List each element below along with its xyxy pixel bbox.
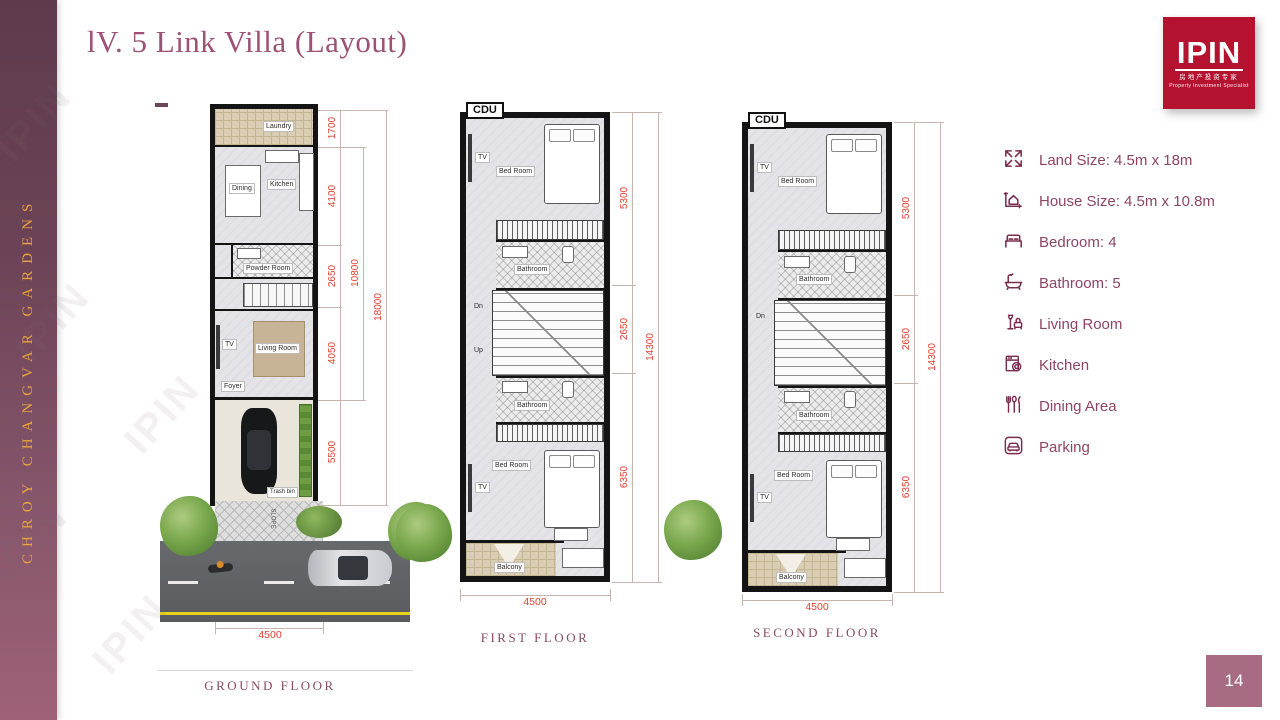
spec-item-living-room: Living Room — [1002, 304, 1232, 345]
ground-building-outline: Laundry Dining Kitchen Powder Room TV Li… — [210, 104, 318, 506]
room-label-up: Up — [474, 346, 483, 355]
room-label-trash-bin: Trash bin — [267, 487, 298, 498]
wardrobe-graphic — [778, 434, 886, 452]
room-label-balcony: Balcony — [776, 572, 807, 583]
second-floor-plan: CDU TV Bed Room Bathroom Dn Bathroom — [712, 110, 972, 655]
room-label-bedroom: Bed Room — [496, 166, 535, 177]
dim-width-4500: 4500 — [523, 597, 546, 608]
dining-icon — [1002, 393, 1025, 421]
dim-width-4500: 4500 — [805, 602, 828, 613]
room-label-foyer: Foyer — [221, 381, 245, 392]
tv-unit-graphic — [468, 464, 472, 512]
dim-4050: 4050 — [328, 342, 338, 364]
tree-graphic — [160, 496, 218, 556]
dim-4100: 4100 — [328, 185, 338, 207]
bed-graphic — [826, 460, 882, 538]
room-label-balcony: Balcony — [494, 562, 525, 573]
spec-item-kitchen: Kitchen — [1002, 345, 1232, 386]
room-label-tv: TV — [757, 492, 772, 503]
spec-item-land-size: Land Size: 4.5m x 18m — [1002, 140, 1232, 181]
floor-caption-ground: GROUND FLOOR — [180, 678, 360, 694]
first-floor-plan: CDU TV Bed Room Bathroom Dn Up Bathroom — [430, 100, 690, 660]
dim-2650: 2650 — [902, 328, 912, 350]
spec-item-label: Parking — [1039, 439, 1090, 456]
house-icon — [1002, 188, 1025, 216]
spec-item-bathroom: Bathroom: 5 — [1002, 263, 1232, 304]
sidebar: CHROY CHANGVAR GARDENS — [0, 0, 57, 720]
spec-item-dining: Dining Area — [1002, 386, 1232, 427]
room-label-powder-room: Powder Room — [243, 263, 293, 274]
room-label-slope: SLOPE — [268, 508, 277, 528]
dim-18000: 18000 — [374, 293, 384, 321]
room-label-tv: TV — [222, 339, 237, 350]
kitchen-counter-graphic — [299, 153, 314, 211]
page-title: lV. 5 Link Villa (Layout) — [87, 24, 407, 60]
spec-item-parking: Parking — [1002, 427, 1232, 468]
sidebar-vertical-text: CHROY CHANGVAR GARDENS — [0, 110, 57, 650]
spec-item-label: House Size: 4.5m x 10.8m — [1039, 193, 1215, 210]
room-label-dn: Dn — [756, 312, 765, 321]
wardrobe-graphic — [496, 220, 604, 240]
room-label-tv: TV — [757, 162, 772, 173]
spec-item-house-size: House Size: 4.5m x 10.8m — [1002, 181, 1232, 222]
logo-wordmark: IPIN — [1175, 38, 1243, 71]
expand-icon — [1002, 147, 1025, 175]
kitchen-icon — [1002, 352, 1025, 380]
dim-14300: 14300 — [646, 333, 656, 361]
spec-item-bedroom: Bedroom: 4 — [1002, 222, 1232, 263]
dim-10800: 10800 — [351, 259, 361, 287]
spec-item-label: Land Size: 4.5m x 18m — [1039, 152, 1192, 169]
cdu-label: CDU — [748, 112, 786, 129]
room-label-laundry: Laundry — [263, 121, 294, 132]
logo-tagline: Property Investment Specialist — [1169, 83, 1249, 89]
page-number-badge: 14 — [1206, 655, 1262, 707]
floor-caption-first: FIRST FLOOR — [455, 630, 615, 646]
bed-graphic — [544, 124, 600, 204]
dim-2650: 2650 — [328, 265, 338, 287]
ground-floor-plan: Laundry Dining Kitchen Powder Room TV Li… — [160, 100, 410, 712]
room-label-bedroom: Bed Room — [778, 176, 817, 187]
room-label-bathroom: Bathroom — [796, 274, 832, 285]
second-building-outline: TV Bed Room Bathroom Dn Bathroom TV — [742, 122, 892, 592]
stairs-graphic — [243, 283, 313, 307]
dim-2650: 2650 — [620, 318, 630, 340]
cdu-label: CDU — [466, 102, 504, 119]
moving-car-graphic — [308, 550, 392, 586]
dim-width-4500: 4500 — [258, 630, 281, 641]
dim-5500: 5500 — [328, 441, 338, 463]
living-room-icon — [1002, 311, 1025, 339]
tv-unit-graphic — [216, 325, 220, 369]
room-label-bathroom: Bathroom — [796, 410, 832, 421]
tv-unit-graphic — [468, 134, 472, 182]
dim-5300: 5300 — [902, 197, 912, 219]
ipin-logo: IPIN 房地产投资专家 Property Investment Special… — [1163, 17, 1255, 109]
logo-chinese-text: 房地产投资专家 — [1179, 74, 1239, 81]
kitchen-appliance-graphic — [265, 150, 299, 163]
room-label-dining: Dining — [229, 183, 255, 194]
bed-graphic — [544, 450, 600, 528]
spec-item-label: Dining Area — [1039, 398, 1117, 415]
first-building-outline: TV Bed Room Bathroom Dn Up Bathroom TV — [460, 112, 610, 582]
room-label-bedroom: Bed Room — [774, 470, 813, 481]
dim-5300: 5300 — [620, 187, 630, 209]
tree-graphic — [664, 500, 722, 560]
room-label-dn: Dn — [474, 302, 483, 311]
spec-item-label: Bedroom: 4 — [1039, 234, 1117, 251]
dim-14300: 14300 — [928, 343, 938, 371]
tv-unit-graphic — [750, 474, 754, 522]
bed-icon — [1002, 229, 1025, 257]
wardrobe-graphic — [496, 424, 604, 442]
dim-6350: 6350 — [620, 466, 630, 488]
parked-car-graphic — [241, 408, 277, 494]
spec-item-label: Living Room — [1039, 316, 1122, 333]
room-label-tv: TV — [475, 152, 490, 163]
parking-car-icon — [1002, 434, 1025, 462]
wardrobe-graphic — [778, 230, 886, 250]
room-label-tv: TV — [475, 482, 490, 493]
spec-item-label: Kitchen — [1039, 357, 1089, 374]
stairs-graphic — [774, 300, 886, 386]
tv-unit-graphic — [750, 144, 754, 192]
room-label-bathroom: Bathroom — [514, 264, 550, 275]
spec-legend: Land Size: 4.5m x 18m House Size: 4.5m x… — [1002, 140, 1232, 468]
tree-graphic — [396, 504, 452, 562]
bathtub-icon — [1002, 270, 1025, 298]
room-label-kitchen: Kitchen — [267, 179, 296, 190]
shrub-graphic — [296, 506, 342, 538]
bed-graphic — [826, 134, 882, 214]
slide: IPIN IPIN IPIN IPIN IPIN CHROY CHANGVAR … — [0, 0, 1280, 720]
motorbike-graphic — [208, 563, 234, 574]
room-label-living-room: Living Room — [255, 343, 300, 354]
spec-item-label: Bathroom: 5 — [1039, 275, 1121, 292]
room-label-bathroom: Bathroom — [514, 400, 550, 411]
dim-1700: 1700 — [328, 117, 338, 139]
room-label-bedroom: Bed Room — [492, 460, 531, 471]
planter-strip-graphic — [299, 404, 312, 497]
stairs-graphic — [492, 290, 604, 376]
floor-caption-second: SECOND FLOOR — [727, 625, 907, 641]
dim-6350: 6350 — [902, 476, 912, 498]
